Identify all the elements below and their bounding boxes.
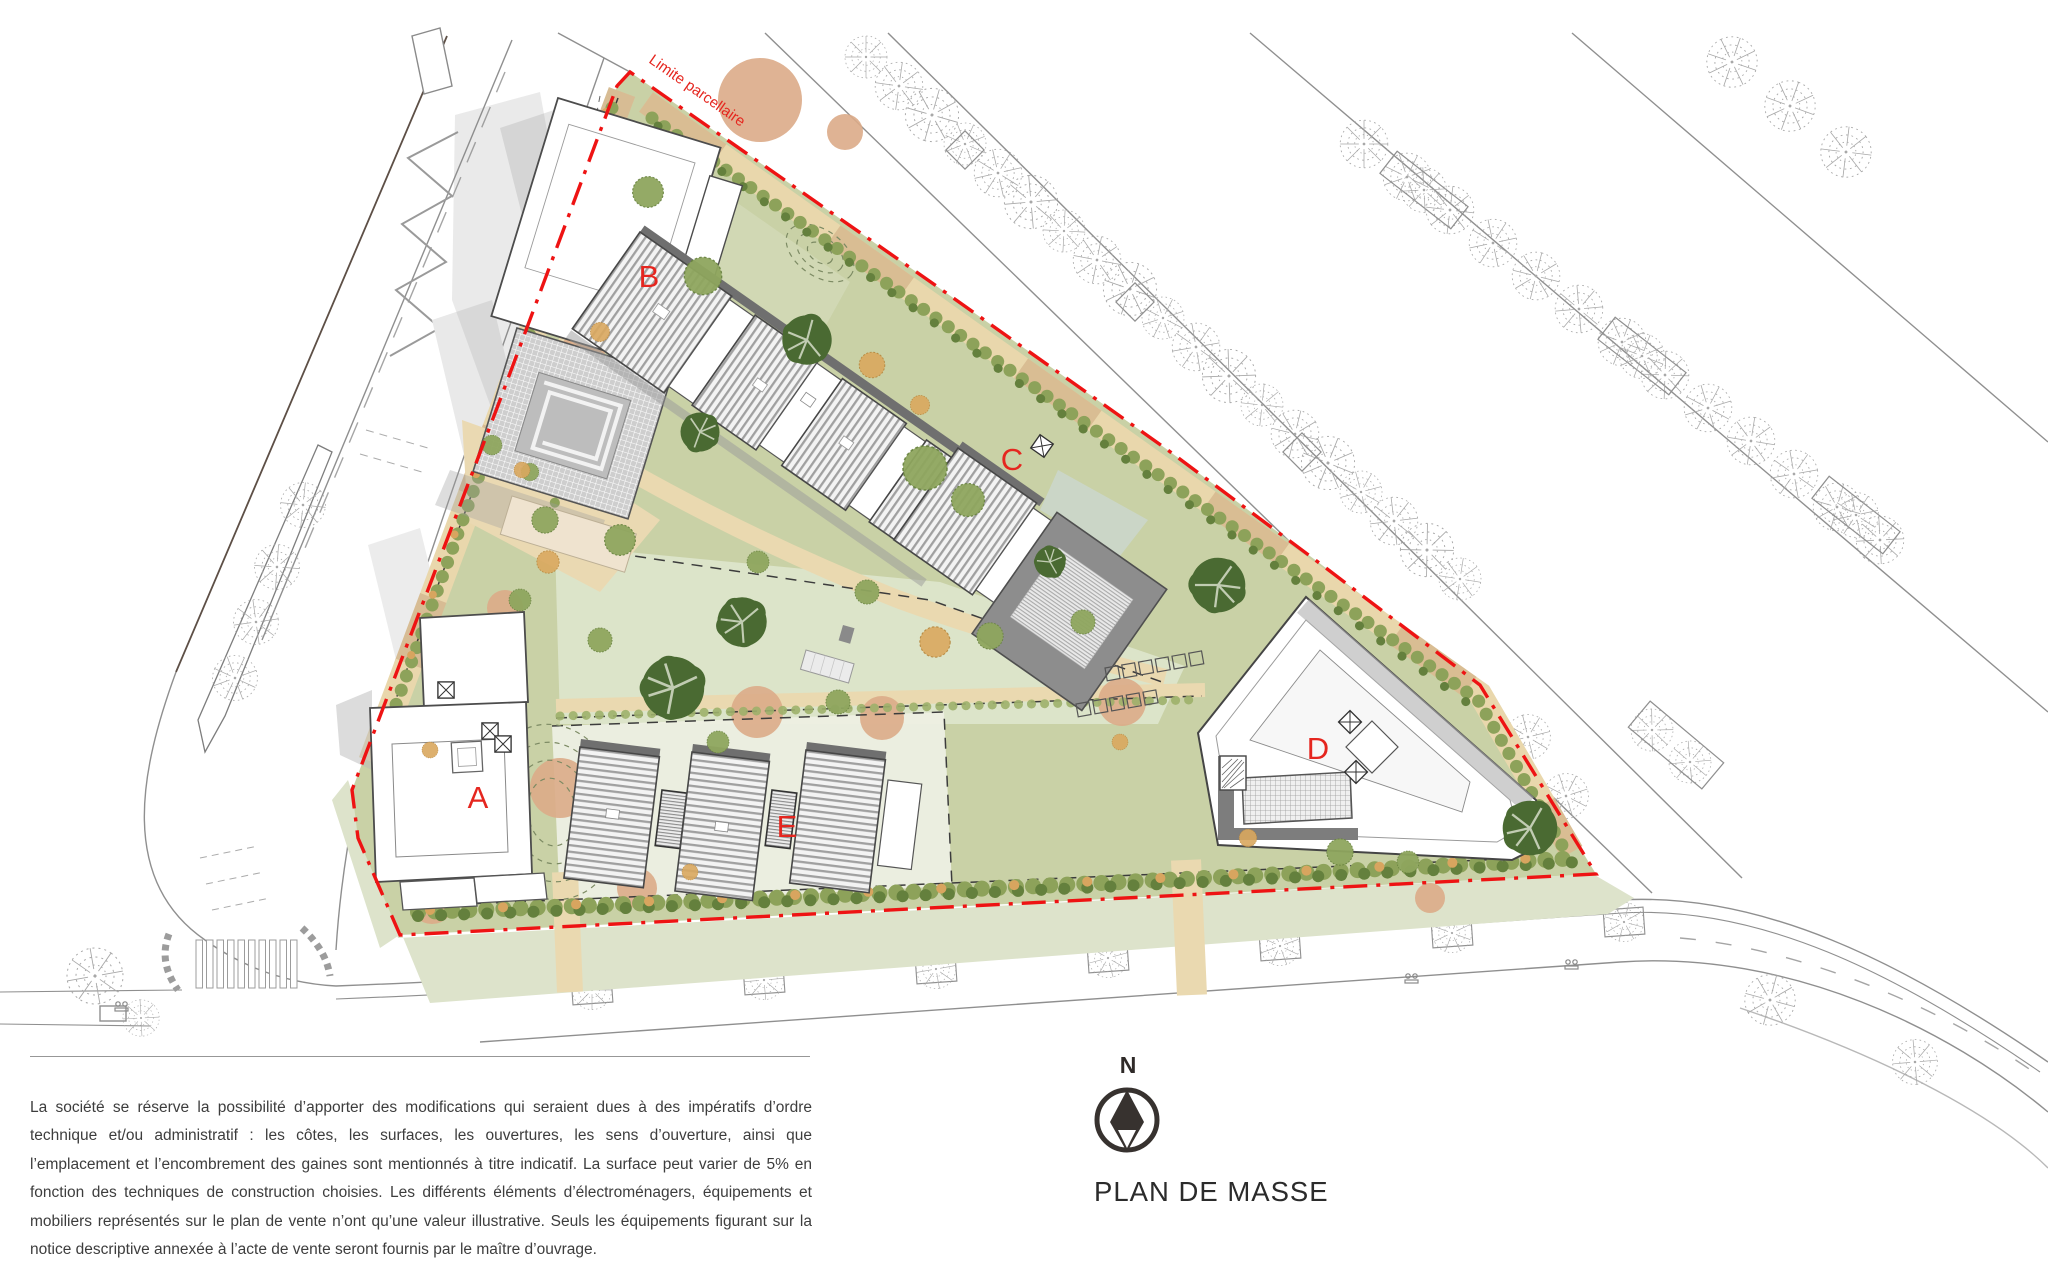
building-e	[564, 739, 922, 900]
site-plan: A B C D E Limite parcellaire	[0, 0, 2048, 1263]
plan-de-masse-page: A B C D E Limite parcellaire La société …	[0, 0, 2048, 1263]
building-label-a: A	[468, 780, 489, 815]
plan-title: PLAN DE MASSE	[1094, 1176, 1329, 1208]
building-label-b: B	[639, 259, 660, 294]
north-label: N	[1108, 1052, 1148, 1079]
north-arrow-icon	[1092, 1082, 1162, 1158]
building-label-d: D	[1307, 731, 1329, 766]
building-label-e: E	[777, 809, 798, 844]
building-label-c: C	[1001, 442, 1023, 477]
divider-line	[30, 1056, 810, 1057]
disclaimer-text: La société se réserve la possibilité d’a…	[30, 1094, 812, 1263]
